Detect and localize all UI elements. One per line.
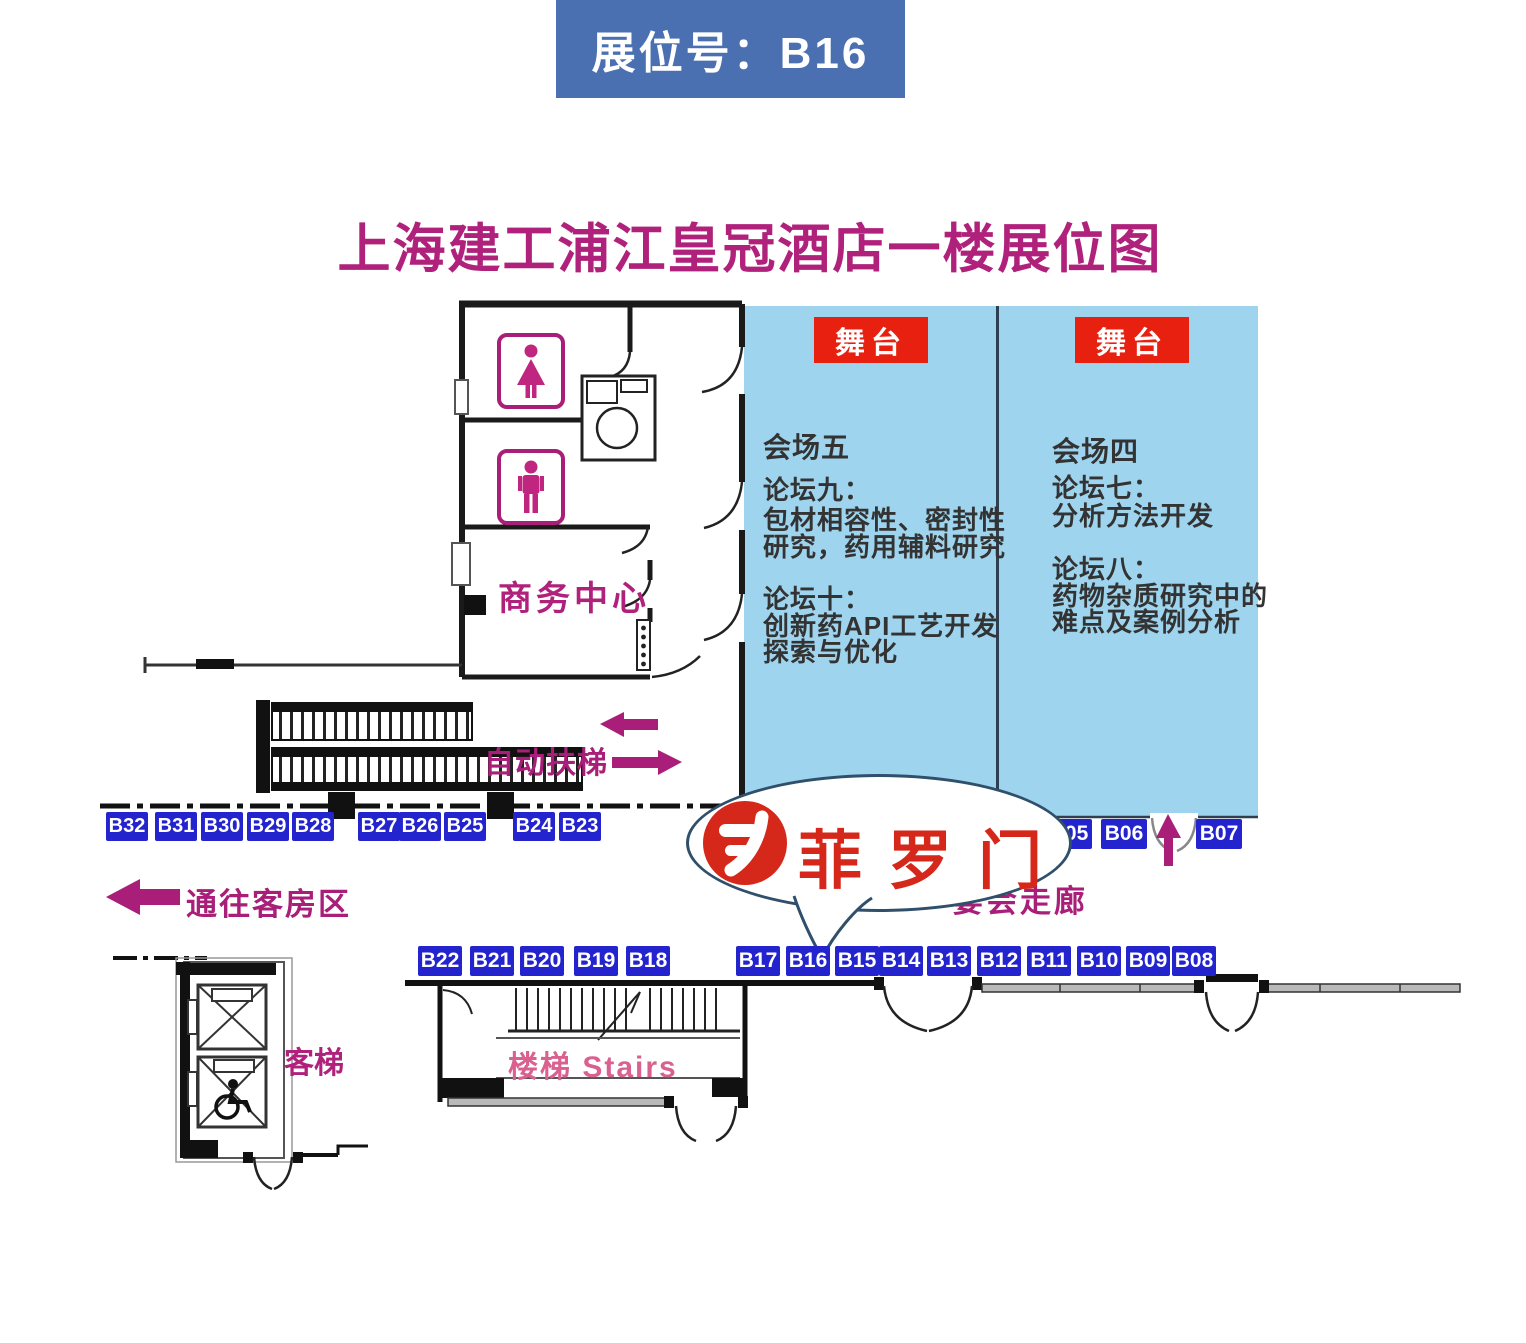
booth-badge-b30: B30: [201, 812, 243, 841]
business-center-label: 商务中心: [498, 571, 650, 620]
booth-badge-b09: B09: [1126, 946, 1170, 976]
elevator-icon: [113, 958, 292, 1162]
exhibitor-logo-icon: [703, 801, 787, 885]
venue-left-forum-b-line: 探索与优化: [763, 632, 898, 669]
booth-badge-b15: B15: [835, 946, 879, 976]
venue-left-name: 会场五: [763, 426, 850, 466]
male-restroom-icon: [497, 449, 565, 525]
booth-badge-b16: B16: [786, 946, 830, 976]
stage-badge-right: 舞台: [1075, 317, 1189, 363]
booth-badge-b27: B27: [358, 812, 400, 841]
booth-badge-b12: B12: [977, 946, 1021, 976]
entrance-up-arrow-icon: [1156, 814, 1181, 866]
booth-badge-b32: B32: [106, 812, 148, 841]
booth-badge-b28: B28: [292, 812, 334, 841]
booth-badge-b07: B07: [1196, 819, 1242, 849]
exhibitor-name-label: 菲罗门: [798, 810, 1068, 902]
venue-left-forum-a-line: 研究，药用辅料研究: [763, 527, 1006, 564]
to-guest-rooms-label: 通往客房区: [186, 879, 351, 924]
floor-plan-drawing: [0, 0, 1526, 1343]
booth-badge-b22: B22: [418, 946, 462, 976]
venue-right-forum-a-line: 分析方法开发: [1052, 496, 1214, 533]
stairs-label: 楼梯 Stairs: [508, 1042, 678, 1086]
booth-badge-b11: B11: [1027, 946, 1071, 976]
booth-badge-b25: B25: [444, 812, 486, 841]
booth-badge-b20: B20: [520, 946, 564, 976]
booth-badge-b14: B14: [879, 946, 923, 976]
booth-badge-b10: B10: [1077, 946, 1121, 976]
venue-right-name: 会场四: [1052, 430, 1139, 470]
elevator-label: 客梯: [284, 1038, 344, 1082]
booth-number-banner: 展位号：B16: [556, 0, 905, 98]
booth-badge-b13: B13: [927, 946, 971, 976]
booth-badge-b06: B06: [1101, 819, 1147, 849]
escalator-arrow-left-icon: [600, 712, 658, 737]
escalator-arrow-right-icon: [612, 750, 682, 775]
guest-rooms-arrow-icon: [106, 879, 180, 915]
female-restroom-icon: [497, 333, 565, 409]
escalator-label: 自动扶梯: [484, 738, 608, 782]
page-title: 上海建工浦江皇冠酒店一楼展位图: [330, 207, 1170, 283]
booth-badge-b29: B29: [247, 812, 289, 841]
booth-badge-b31: B31: [155, 812, 197, 841]
booth-badge-b19: B19: [574, 946, 618, 976]
venue-right-forum-b-line: 难点及案例分析: [1052, 602, 1241, 639]
booth-badge-b23: B23: [559, 812, 601, 841]
booth-badge-b26: B26: [399, 812, 441, 841]
floor-plan-page: 展位号：B16 上海建工浦江皇冠酒店一楼展位图 舞台 舞台 会场五 论坛九： 包…: [0, 0, 1526, 1343]
booth-badge-b21: B21: [470, 946, 514, 976]
booth-badge-b08: B08: [1172, 946, 1216, 976]
booth-badge-b24: B24: [513, 812, 555, 841]
stage-badge-left: 舞台: [814, 317, 928, 363]
booth-badge-b17: B17: [736, 946, 780, 976]
booth-badge-b18: B18: [626, 946, 670, 976]
